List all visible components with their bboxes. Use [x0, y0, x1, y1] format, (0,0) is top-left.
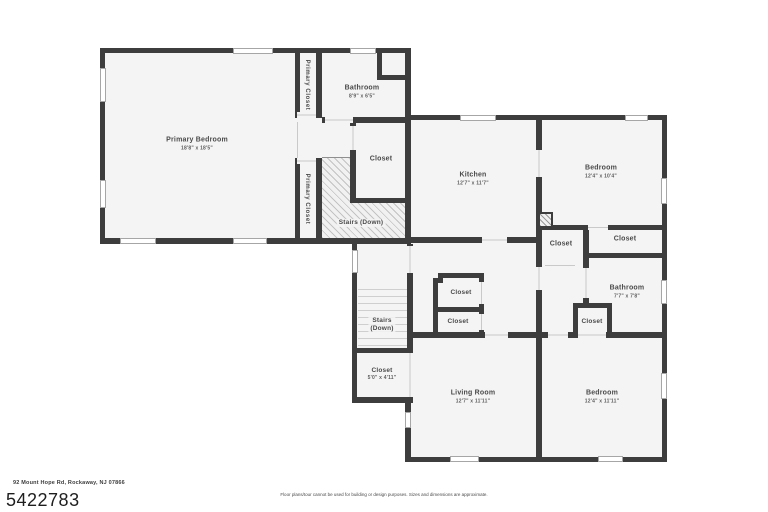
room-dimensions: 5'0" x 4'11" — [368, 375, 397, 381]
floor-plan: Primary Bedroom 18'8" x 18'5" Primary Cl… — [0, 0, 768, 512]
room-name: Stairs (Down) — [337, 219, 386, 227]
room-dimensions: 12'4" x 11'11" — [585, 398, 619, 404]
room-dimensions: 12'7" x 11'11" — [451, 398, 496, 404]
door-opening — [588, 225, 608, 230]
door-opening — [583, 268, 589, 298]
wall — [607, 303, 612, 337]
window — [661, 178, 667, 204]
room-label-closet-bedroom-left: Closet — [550, 241, 573, 250]
room-name: (Down) — [368, 325, 395, 333]
window — [233, 48, 273, 54]
room-name: Closet — [370, 156, 393, 165]
wall — [438, 307, 484, 312]
window — [625, 115, 648, 121]
window — [352, 250, 358, 273]
room-name: Living Room — [451, 390, 496, 399]
door-opening — [536, 267, 542, 290]
room-label-primary-closet-bottom: Primary Closet — [304, 174, 310, 225]
room-name: Closet — [368, 367, 397, 375]
door-opening — [479, 314, 484, 330]
room-name: Primary Bedroom — [166, 137, 228, 146]
wall — [536, 332, 542, 462]
room-label-primary-closet-top: Primary Closet — [304, 60, 310, 111]
room-dimensions: 12'7" x 11'7" — [457, 180, 489, 186]
door-opening — [479, 282, 484, 304]
wall — [408, 332, 541, 338]
room-label-stairs-lower: Stairs (Down) — [368, 317, 395, 333]
room-name: Closet — [450, 289, 471, 297]
disclaimer-text: Floor plans/tour cannot be used for buil… — [0, 492, 768, 497]
room-name: Closet — [550, 241, 573, 250]
window — [405, 412, 411, 428]
room-label-primary-bedroom: Primary Bedroom 18'8" x 18'5" — [166, 137, 228, 152]
door-opening — [548, 332, 568, 338]
window — [350, 48, 376, 54]
wall — [536, 120, 542, 150]
room-label-closet-mid-upper: Closet — [450, 289, 471, 297]
wall — [438, 273, 484, 278]
door-opening — [295, 122, 300, 158]
room-label-closet-bedroom-right: Closet — [614, 236, 637, 245]
room-label-living-room: Living Room 12'7" x 11'11" — [451, 390, 496, 405]
window — [661, 373, 667, 399]
room-label-bathroom-right: Bathroom 7'7" x 7'8" — [610, 285, 645, 300]
room-label-hall-closet: Closet — [370, 156, 393, 165]
door-opening — [482, 237, 507, 243]
room-dimensions: 12'4" x 10'4" — [585, 173, 617, 179]
room-label-bedroom-top: Bedroom 12'4" x 10'4" — [585, 165, 617, 180]
room-name: Stairs — [368, 317, 395, 325]
door-opening — [325, 117, 353, 123]
window — [598, 456, 623, 462]
wall — [536, 290, 542, 332]
room-label-stairs-upper: Stairs (Down) — [337, 219, 386, 227]
wall — [352, 397, 413, 403]
room-name: Kitchen — [457, 172, 489, 181]
door-opening — [578, 332, 606, 338]
wall — [352, 348, 413, 353]
wall — [588, 253, 667, 258]
door-opening — [485, 332, 508, 338]
room-name: Closet — [581, 318, 602, 326]
room-name: Bathroom — [610, 285, 645, 294]
room-name: Closet — [447, 318, 468, 326]
room-dimensions: 8'9" x 6'5" — [345, 93, 380, 99]
room-name: Bedroom — [585, 390, 619, 399]
chimney — [538, 212, 553, 228]
wall — [316, 158, 322, 244]
window — [460, 115, 496, 121]
door-opening — [407, 246, 413, 273]
wall — [295, 158, 300, 238]
window — [661, 280, 667, 304]
room-label-kitchen: Kitchen 12'7" x 11'7" — [457, 172, 489, 187]
door-opening — [407, 353, 413, 397]
window — [233, 238, 267, 244]
wall — [377, 48, 382, 80]
room-name: Closet — [614, 236, 637, 245]
room-dimensions: 7'7" x 7'8" — [610, 293, 645, 299]
door-opening — [297, 158, 316, 164]
door-opening — [297, 112, 316, 118]
window — [100, 180, 106, 208]
wall — [350, 198, 411, 203]
room-name: Bedroom — [585, 165, 617, 174]
window — [120, 238, 156, 244]
room-label-closet-small: Closet 5'0" x 4'11" — [368, 367, 397, 381]
wall — [377, 75, 411, 80]
wall — [536, 237, 542, 267]
room-dimensions: 18'8" x 18'5" — [166, 145, 228, 151]
wall — [410, 237, 542, 243]
window — [100, 68, 106, 102]
wall — [316, 53, 322, 118]
property-address: 92 Mount Hope Rd, Rockaway, NJ 07866 — [13, 480, 125, 486]
room-label-bathroom-upper: Bathroom 8'9" x 6'5" — [345, 85, 380, 100]
room-name: Bathroom — [345, 85, 380, 94]
window — [450, 456, 479, 462]
door-opening — [536, 150, 542, 177]
wall — [295, 53, 300, 117]
door-opening — [545, 263, 575, 268]
room-label-bedroom-bottom: Bedroom 12'4" x 11'11" — [585, 390, 619, 405]
door-opening — [350, 126, 356, 150]
room-label-closet-mid-lower: Closet — [447, 318, 468, 326]
room-label-closet-bath: Closet — [581, 318, 602, 326]
